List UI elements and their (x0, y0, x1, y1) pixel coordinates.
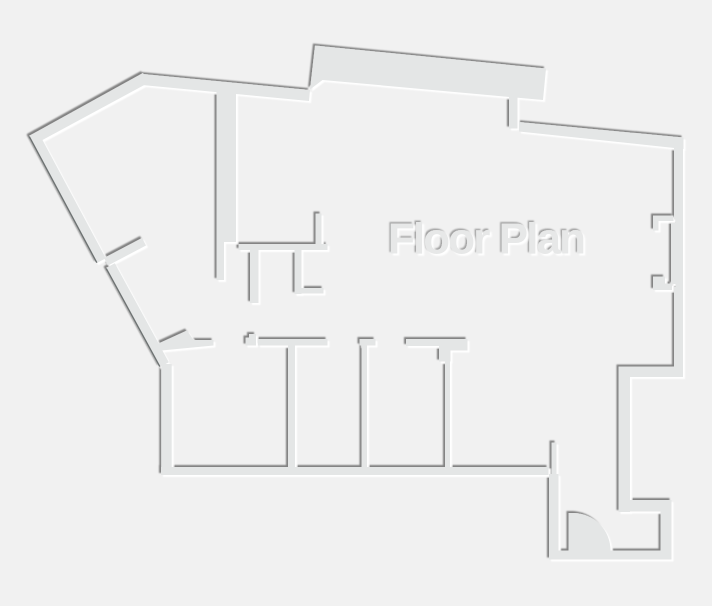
svg-text:Floor Plan: Floor Plan (388, 215, 584, 264)
